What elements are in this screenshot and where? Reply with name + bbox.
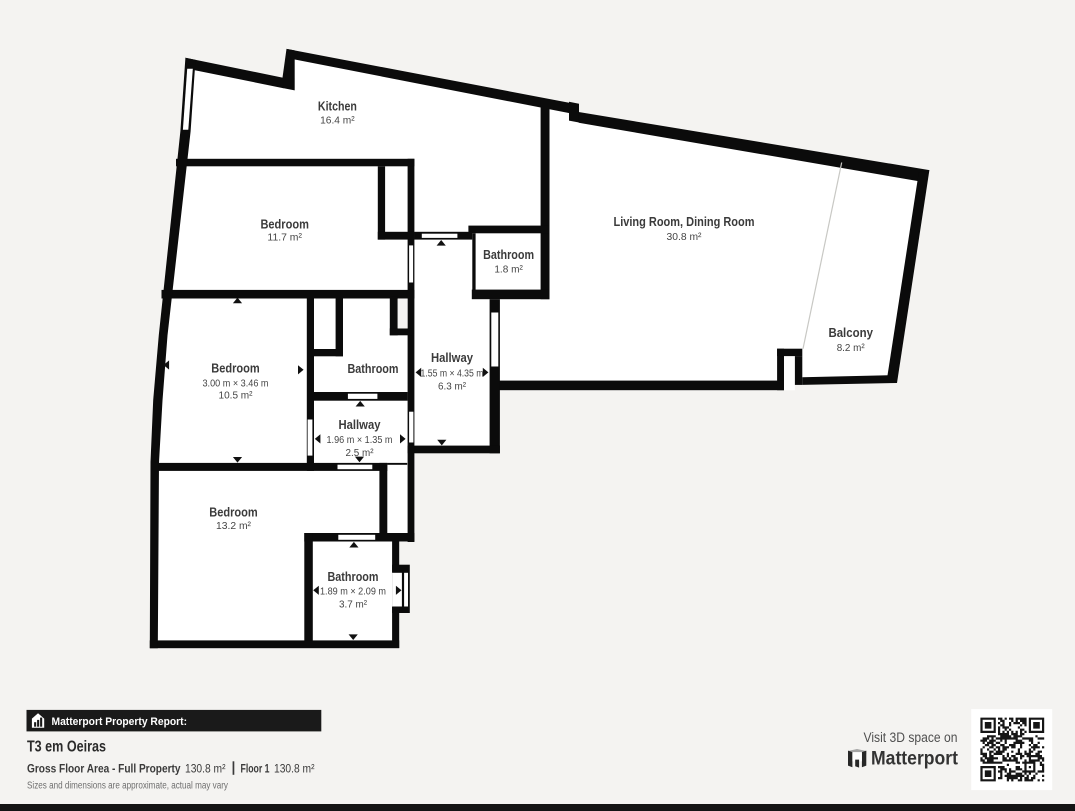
svg-text:3.7 m²: 3.7 m² — [339, 599, 368, 610]
svg-text:Bedroom: Bedroom — [209, 506, 258, 520]
svg-text:Hallway: Hallway — [339, 418, 381, 432]
svg-text:1.89 m × 2.09 m: 1.89 m × 2.09 m — [320, 586, 386, 597]
svg-text:Living Room, Dining Room: Living Room, Dining Room — [614, 215, 755, 229]
svg-text:8.2 m²: 8.2 m² — [837, 343, 866, 354]
svg-text:11.7 m²: 11.7 m² — [267, 233, 302, 244]
svg-text:Matterport Property Report:: Matterport Property Report: — [52, 716, 188, 728]
svg-text:Bedroom: Bedroom — [211, 362, 260, 376]
svg-text:1.96 m × 1.35 m: 1.96 m × 1.35 m — [327, 435, 393, 446]
svg-text:130.8 m²: 130.8 m² — [185, 762, 226, 776]
svg-text:Bathroom: Bathroom — [348, 362, 399, 376]
svg-text:Kitchen: Kitchen — [318, 100, 357, 114]
svg-text:130.8 m²: 130.8 m² — [274, 762, 315, 776]
svg-text:Gross Floor Area - Full Proper: Gross Floor Area - Full Property — [27, 762, 181, 776]
svg-text:Bathroom: Bathroom — [483, 248, 534, 262]
svg-text:Bedroom: Bedroom — [260, 218, 309, 232]
svg-text:2.5 m²: 2.5 m² — [346, 448, 375, 459]
svg-text:Floor 1: Floor 1 — [241, 762, 270, 776]
svg-text:3.00 m × 3.46 m: 3.00 m × 3.46 m — [203, 379, 269, 390]
svg-text:1.8 m²: 1.8 m² — [494, 265, 523, 276]
svg-text:Visit 3D space on: Visit 3D space on — [864, 730, 958, 745]
svg-text:Balcony: Balcony — [828, 326, 873, 340]
svg-text:13.2 m²: 13.2 m² — [216, 521, 252, 532]
svg-text:Matterport: Matterport — [871, 749, 959, 770]
svg-text:Bathroom: Bathroom — [328, 570, 379, 584]
svg-text:T3 em Oeiras: T3 em Oeiras — [27, 739, 106, 756]
svg-text:1.55 m × 4.35 m: 1.55 m × 4.35 m — [421, 368, 484, 379]
svg-text:6.3 m²: 6.3 m² — [438, 381, 467, 392]
svg-text:30.8 m²: 30.8 m² — [667, 232, 703, 243]
svg-text:10.5 m²: 10.5 m² — [219, 391, 254, 402]
svg-text:Sizes and dimensions are appro: Sizes and dimensions are approximate, ac… — [27, 781, 228, 792]
svg-text:Hallway: Hallway — [431, 351, 473, 365]
svg-text:16.4 m²: 16.4 m² — [320, 116, 355, 127]
